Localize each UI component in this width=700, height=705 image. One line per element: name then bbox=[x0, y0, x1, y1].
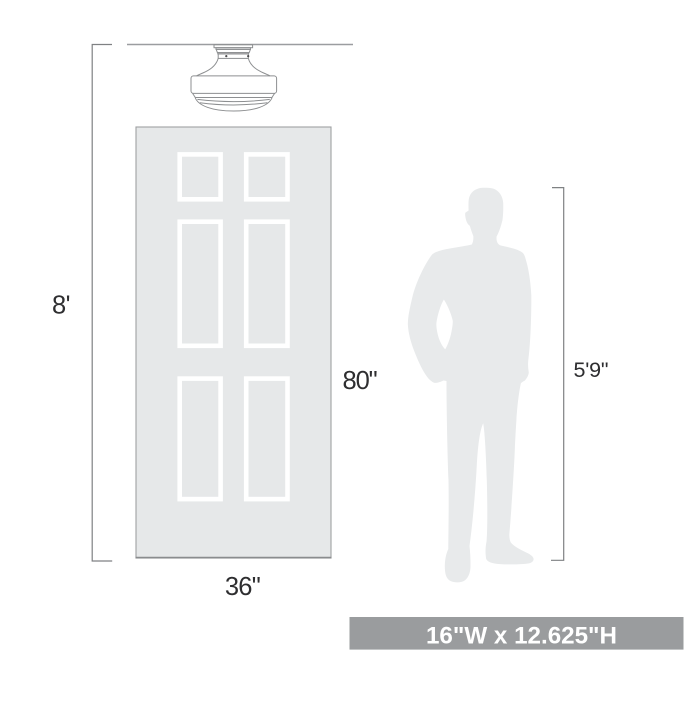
svg-text:16"W x 12.625"H: 16"W x 12.625"H bbox=[426, 622, 617, 649]
svg-text:8': 8' bbox=[52, 292, 70, 320]
svg-text:5'9": 5'9" bbox=[574, 358, 609, 382]
svg-text:80": 80" bbox=[343, 367, 377, 395]
svg-text:36": 36" bbox=[225, 573, 260, 601]
